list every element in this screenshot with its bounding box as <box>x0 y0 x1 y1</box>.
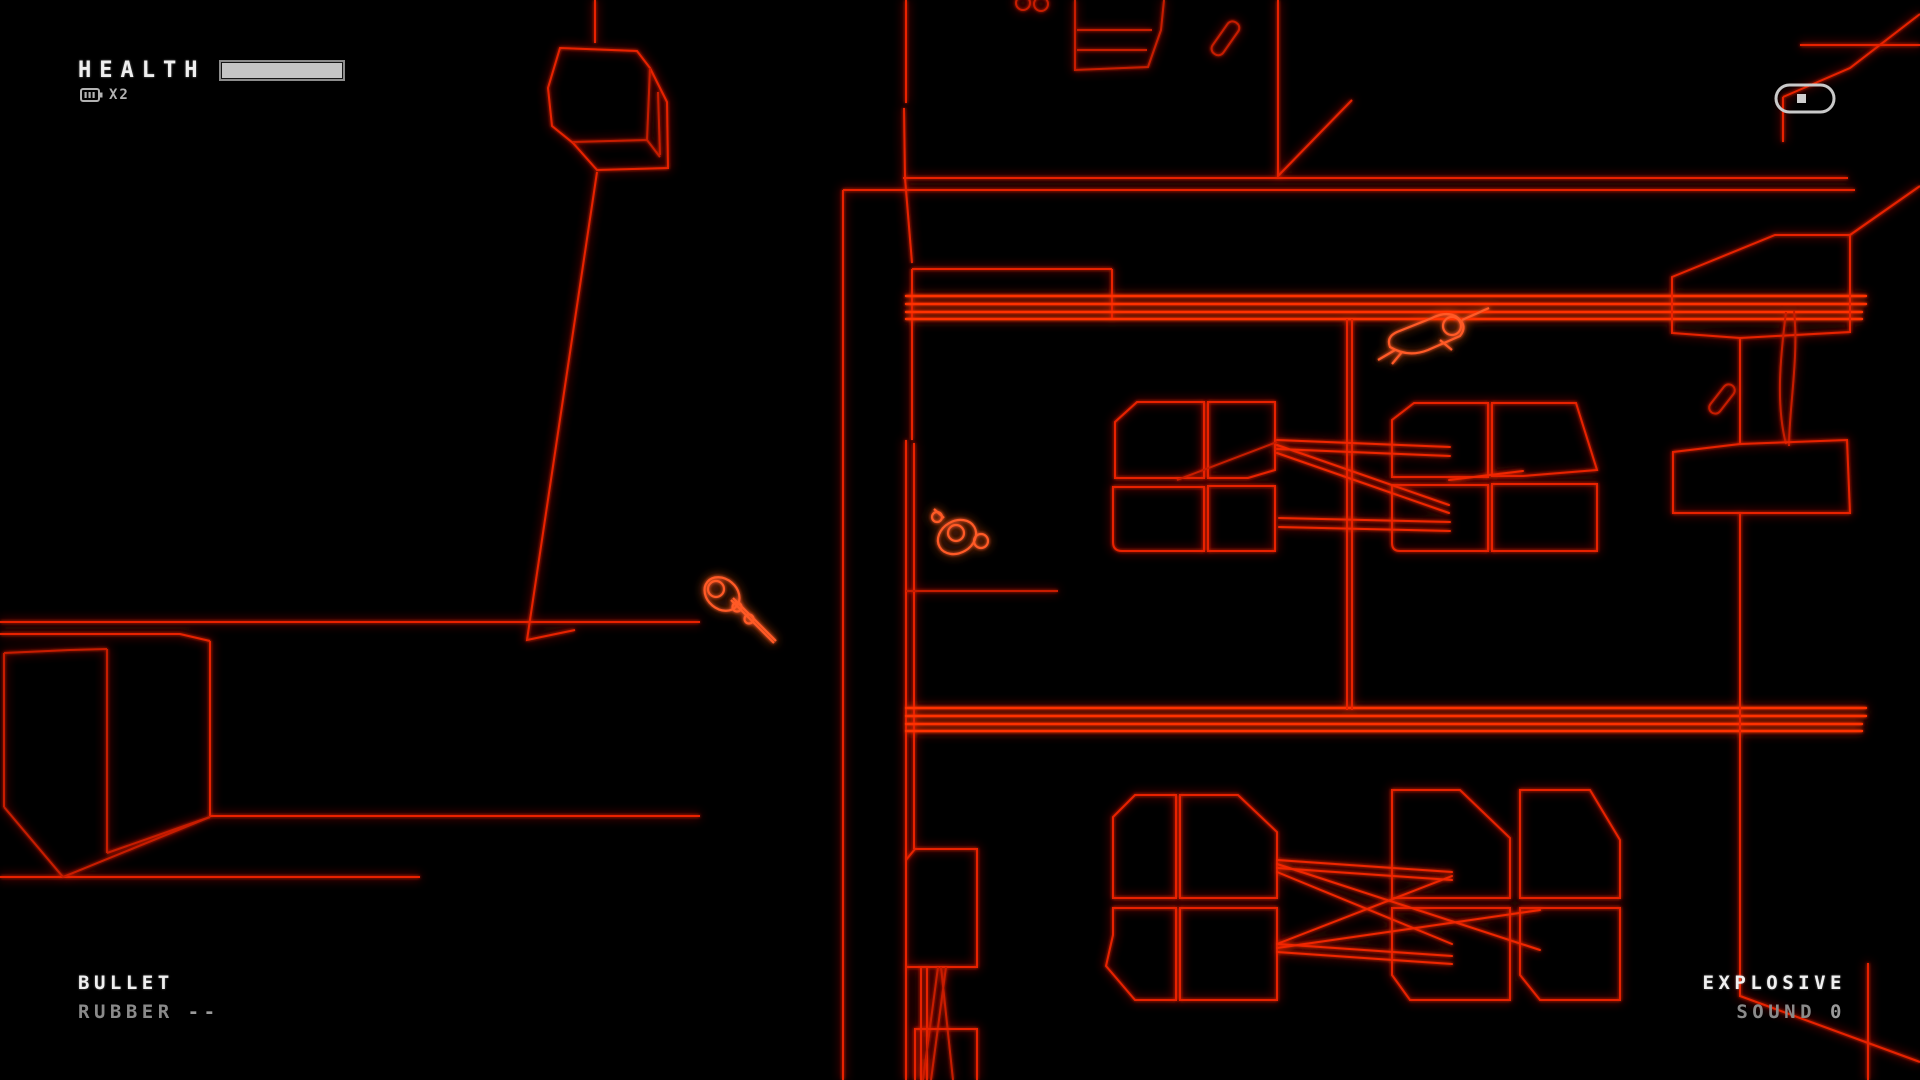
room-top-center <box>843 0 1855 190</box>
crate-cluster-lower <box>1106 790 1620 1000</box>
health-label: HEALTH <box>78 58 205 83</box>
grate-upper <box>906 296 1866 319</box>
health-bar <box>219 60 345 81</box>
secondary-weapon-mode: SOUND <box>1736 1001 1816 1023</box>
game-viewport[interactable] <box>0 0 1920 1080</box>
health-bar-fill <box>222 63 342 78</box>
player-character <box>932 509 988 561</box>
primary-weapon-name: BULLET <box>78 972 220 994</box>
small-prop-pill <box>1707 382 1737 416</box>
room-bottom-left <box>0 622 700 877</box>
secondary-weapon-name: EXPLOSIVE <box>1703 972 1846 994</box>
grate-lower <box>906 708 1866 731</box>
enemy-aiming-left <box>698 570 776 643</box>
primary-weapon-ammo: -- <box>188 1001 220 1023</box>
structures-right <box>1672 14 1920 1080</box>
game-screen: HEALTH X2 BULLET RUBBER-- EXPLOSIVE SOUN… <box>0 0 1920 1080</box>
small-prop-pill <box>1209 19 1241 58</box>
enemy-prone-top <box>1378 308 1489 364</box>
crate-cluster-upper <box>1113 402 1597 551</box>
secondary-weapon-hud: EXPLOSIVE SOUND0 <box>1703 972 1846 1023</box>
battery-icon <box>80 88 104 102</box>
capsule-marker-icon <box>1776 85 1834 112</box>
health-multiplier: X2 <box>109 87 130 103</box>
conveyor-column <box>1347 319 1352 710</box>
health-hud: HEALTH X2 <box>78 58 345 103</box>
secondary-weapon-ammo: 0 <box>1830 1001 1846 1023</box>
primary-weapon-hud: BULLET RUBBER-- <box>78 972 220 1023</box>
primary-weapon-mode: RUBBER <box>78 1001 174 1023</box>
machine-bottom-center <box>906 849 977 1080</box>
wall-top-left <box>527 0 668 640</box>
